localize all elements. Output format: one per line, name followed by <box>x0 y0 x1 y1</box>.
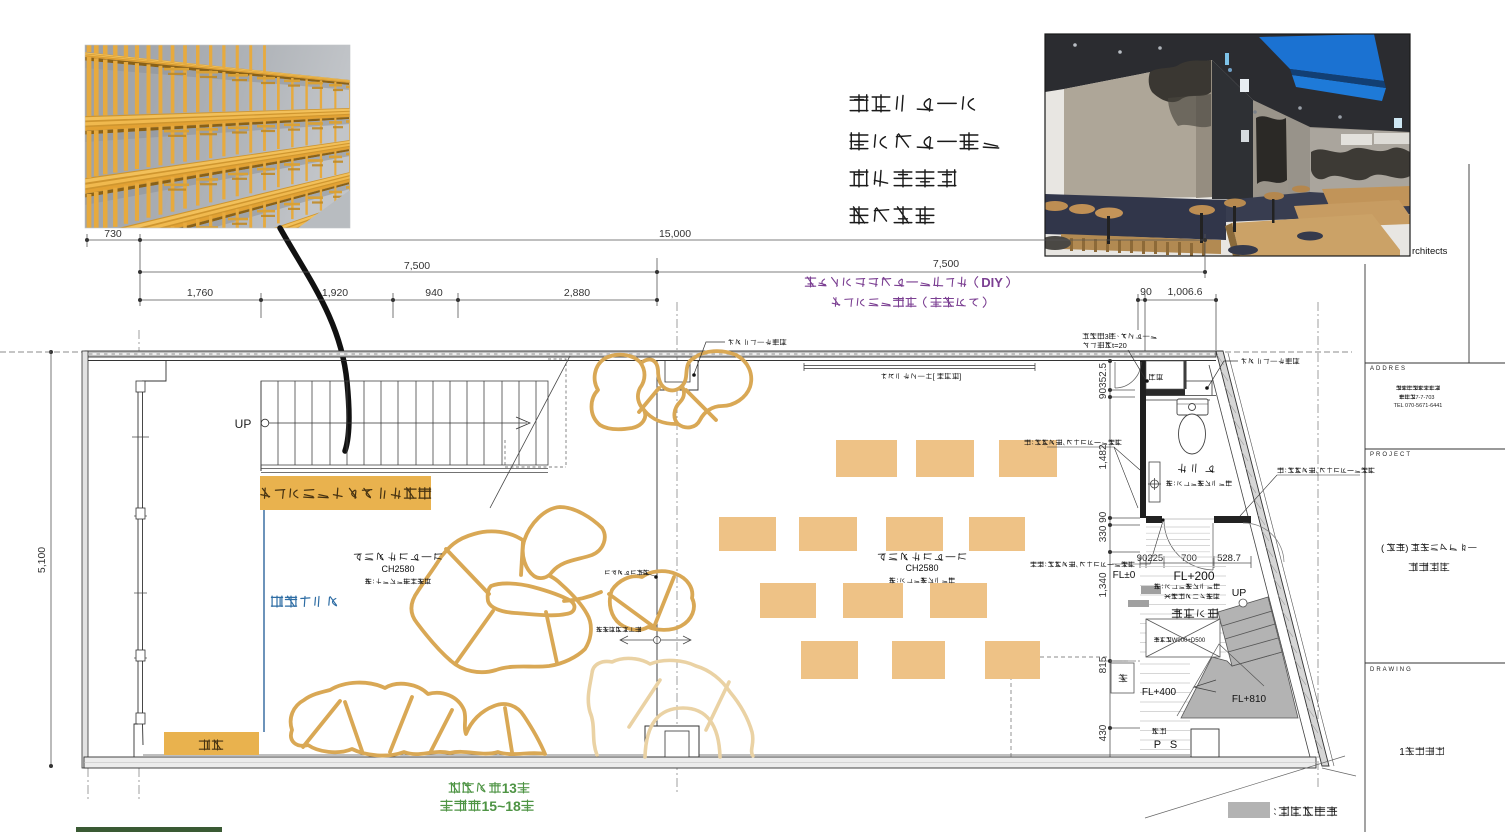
svg-text:90: 90 <box>1140 286 1152 298</box>
svg-text:W900+D500: W900+D500 <box>1172 638 1206 644</box>
svg-text:t=20: t=20 <box>1112 341 1127 350</box>
svg-text:PROJECT: PROJECT <box>1370 452 1412 458</box>
svg-text:90225: 90225 <box>1137 553 1163 564</box>
svg-text:330 90: 330 90 <box>1098 511 1109 542</box>
svg-text:7-7-703: 7-7-703 <box>1416 395 1435 401</box>
svg-text:13: 13 <box>502 781 518 796</box>
svg-text:15~18: 15~18 <box>482 798 522 814</box>
svg-text:]: ] <box>959 372 961 381</box>
svg-text:FL+400: FL+400 <box>1142 687 1177 698</box>
svg-text:FL+810: FL+810 <box>1232 694 1267 705</box>
svg-text:1,006.6: 1,006.6 <box>1167 286 1202 298</box>
svg-text:ADDRES: ADDRES <box>1370 366 1407 372</box>
svg-text:rchitects: rchitects <box>1412 246 1448 257</box>
svg-text:90352.5: 90352.5 <box>1098 362 1109 399</box>
svg-text:815: 815 <box>1098 656 1109 673</box>
svg-text:FL+200: FL+200 <box>1173 569 1214 583</box>
svg-text:1,920: 1,920 <box>322 287 348 299</box>
svg-text:UP: UP <box>235 417 252 431</box>
svg-text:2,880: 2,880 <box>564 287 590 299</box>
svg-text:1,340: 1,340 <box>1098 572 1109 597</box>
svg-text:5,100: 5,100 <box>36 547 48 573</box>
svg-text:7,500: 7,500 <box>404 260 430 272</box>
svg-text:CH2580: CH2580 <box>905 563 938 573</box>
svg-text:15,000: 15,000 <box>659 228 691 240</box>
svg-text:430: 430 <box>1098 724 1109 741</box>
svg-text:FL±0: FL±0 <box>1113 570 1136 581</box>
svg-text:3: 3 <box>1105 332 1109 341</box>
svg-text:1,482: 1,482 <box>1098 444 1109 469</box>
svg-text:528.7: 528.7 <box>1217 553 1241 564</box>
svg-text:DRAWING: DRAWING <box>1370 667 1413 673</box>
svg-text:DIY: DIY <box>981 275 1003 290</box>
svg-text:P S: P S <box>1154 739 1181 751</box>
svg-text:730: 730 <box>104 228 122 240</box>
svg-text:CH2580: CH2580 <box>381 564 414 574</box>
svg-text:1: 1 <box>1399 747 1405 758</box>
svg-text:TEL 070-5671-6441: TEL 070-5671-6441 <box>1394 403 1443 409</box>
svg-text:7,500: 7,500 <box>933 258 959 270</box>
svg-text:700: 700 <box>1181 553 1197 564</box>
svg-text:): ) <box>1405 543 1408 554</box>
svg-text:940: 940 <box>425 287 443 299</box>
svg-text:UP: UP <box>1232 587 1247 599</box>
svg-text:1,760: 1,760 <box>187 287 213 299</box>
